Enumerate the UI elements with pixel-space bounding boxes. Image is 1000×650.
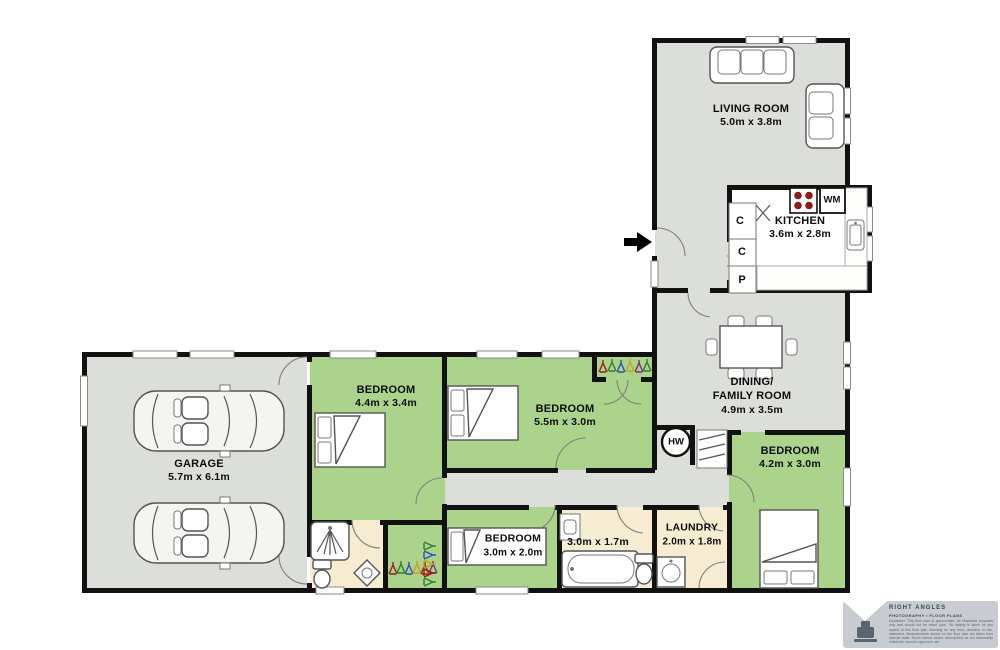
wall — [655, 288, 688, 293]
wall — [307, 385, 312, 557]
bedroom-42-label: BEDROOM 4.2m x 3.0m — [759, 444, 821, 472]
floor-plan: LIVING ROOM 5.0m x 3.8m KITCHEN 3.6m x 2… — [0, 0, 1000, 650]
wall — [727, 430, 732, 475]
wall — [557, 505, 562, 593]
wall — [710, 288, 729, 293]
wall — [380, 520, 445, 525]
wall — [442, 504, 447, 593]
wall — [727, 502, 732, 593]
wall — [307, 583, 312, 593]
room-dims: 2.0m x 1.8m — [663, 535, 722, 548]
brand-footer: RIGHT ANGLES PHOTOGRAPHY • FLOOR PLANS D… — [843, 601, 998, 648]
room-dims: 3.6m x 2.8m — [769, 228, 831, 242]
disclaimer-text: Disclaimer: This floor plan is approxima… — [889, 619, 993, 645]
bathroom-label: 3.0m x 1.7m — [567, 536, 629, 550]
laundry-label: LAUNDRY 2.0m x 1.8m — [663, 522, 722, 549]
room-dims: 4.4m x 3.4m — [355, 397, 417, 411]
wall — [765, 430, 850, 435]
wall — [727, 288, 849, 293]
wall — [82, 588, 660, 593]
wall — [442, 468, 558, 473]
wall — [727, 185, 732, 242]
brand-tagline: PHOTOGRAPHY • FLOOR PLANS — [889, 613, 962, 618]
wall — [727, 185, 850, 190]
brand-logo — [843, 601, 889, 648]
wall — [652, 38, 657, 230]
wall — [652, 38, 850, 43]
cupboard-label: C — [736, 215, 744, 227]
room-name: LAUNDRY — [663, 522, 722, 536]
cupboard-label: C — [738, 246, 746, 258]
pantry-label: P — [738, 274, 745, 286]
wall — [555, 505, 617, 510]
wall — [652, 588, 850, 593]
bedroom-30-label: BEDROOM 3.0m x 2.0m — [484, 533, 543, 560]
room-name: DINING/ — [713, 375, 792, 389]
washing-machine-label: WM — [824, 195, 841, 206]
ensuite-floor — [310, 520, 385, 590]
camera-icon — [854, 621, 877, 642]
room-name: BEDROOM — [355, 383, 417, 397]
corridor-floor — [445, 470, 655, 507]
wall — [442, 352, 447, 478]
room-name: BEDROOM — [534, 402, 596, 416]
room-name: BEDROOM — [484, 533, 543, 547]
wall — [727, 430, 741, 435]
laundry-floor — [655, 507, 729, 590]
room-name: LIVING ROOM — [713, 102, 789, 116]
room-name: KITCHEN — [769, 214, 831, 228]
wall — [867, 185, 872, 293]
wall — [307, 520, 352, 525]
wall — [723, 505, 732, 510]
entry-arrow-icon — [624, 232, 652, 252]
room-name: FAMILY ROOM — [713, 389, 792, 403]
room-dims: 3.0m x 1.7m — [567, 536, 629, 550]
room-dims: 5.7m x 6.1m — [168, 471, 230, 485]
room-dims: 5.0m x 3.8m — [713, 116, 789, 130]
wall — [845, 430, 850, 593]
dining-room-label: DINING/ FAMILY ROOM 4.9m x 3.5m — [713, 375, 792, 417]
wall — [643, 505, 699, 510]
wall — [690, 425, 695, 465]
garage-label: GARAGE 5.7m x 6.1m — [168, 457, 230, 485]
room-name: GARAGE — [168, 457, 230, 471]
hot-water-label: HW — [668, 437, 684, 448]
wall — [82, 352, 87, 593]
wall — [845, 38, 850, 190]
bedroom-44-label: BEDROOM 4.4m x 3.4m — [355, 383, 417, 411]
room-dims: 4.9m x 3.5m — [713, 403, 792, 417]
wardrobe-floor — [385, 520, 445, 590]
living-room-label: LIVING ROOM 5.0m x 3.8m — [713, 102, 789, 130]
wall — [586, 468, 655, 473]
wall — [655, 425, 695, 430]
room-dims: 5.5m x 3.0m — [534, 416, 596, 430]
room-name: BEDROOM — [759, 444, 821, 458]
logo-chevron — [843, 601, 887, 621]
wall — [383, 520, 388, 592]
wall — [641, 377, 655, 382]
brand-name: RIGHT ANGLES — [889, 605, 946, 611]
wall — [307, 352, 312, 362]
bedroom-44-floor — [310, 355, 445, 520]
wall — [592, 377, 606, 382]
wall — [845, 288, 850, 435]
kitchen-label: KITCHEN 3.6m x 2.8m — [769, 214, 831, 242]
entry-hall-floor — [655, 188, 729, 293]
wall — [652, 505, 657, 593]
room-dims: 4.2m x 3.0m — [759, 458, 821, 472]
room-dims: 3.0m x 2.0m — [484, 546, 543, 559]
wall — [442, 505, 529, 510]
wall — [82, 352, 657, 357]
bedroom-55-label: BEDROOM 5.5m x 3.0m — [534, 402, 596, 430]
